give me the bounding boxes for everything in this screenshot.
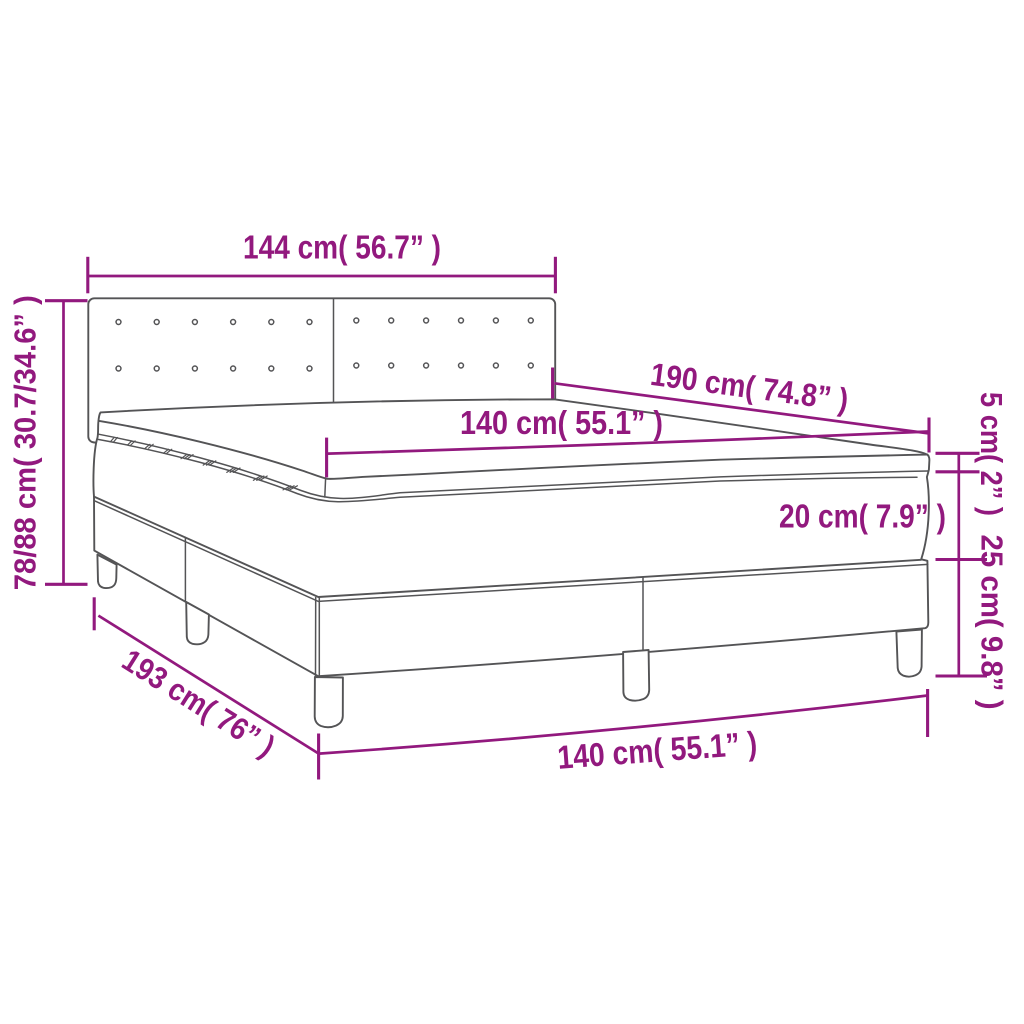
svg-text:25 cm( 9.8” ): 25 cm( 9.8” ) xyxy=(975,535,1009,710)
svg-text:144 cm( 56.7” ): 144 cm( 56.7” ) xyxy=(243,229,441,266)
svg-text:20 cm( 7.9” ): 20 cm( 7.9” ) xyxy=(779,498,946,535)
svg-text:140 cm( 55.1” ): 140 cm( 55.1” ) xyxy=(460,404,663,441)
svg-text:5 cm( 2” ): 5 cm( 2” ) xyxy=(974,392,1008,516)
svg-text:78/88 cm( 30.7/34.6” ): 78/88 cm( 30.7/34.6” ) xyxy=(9,295,43,590)
